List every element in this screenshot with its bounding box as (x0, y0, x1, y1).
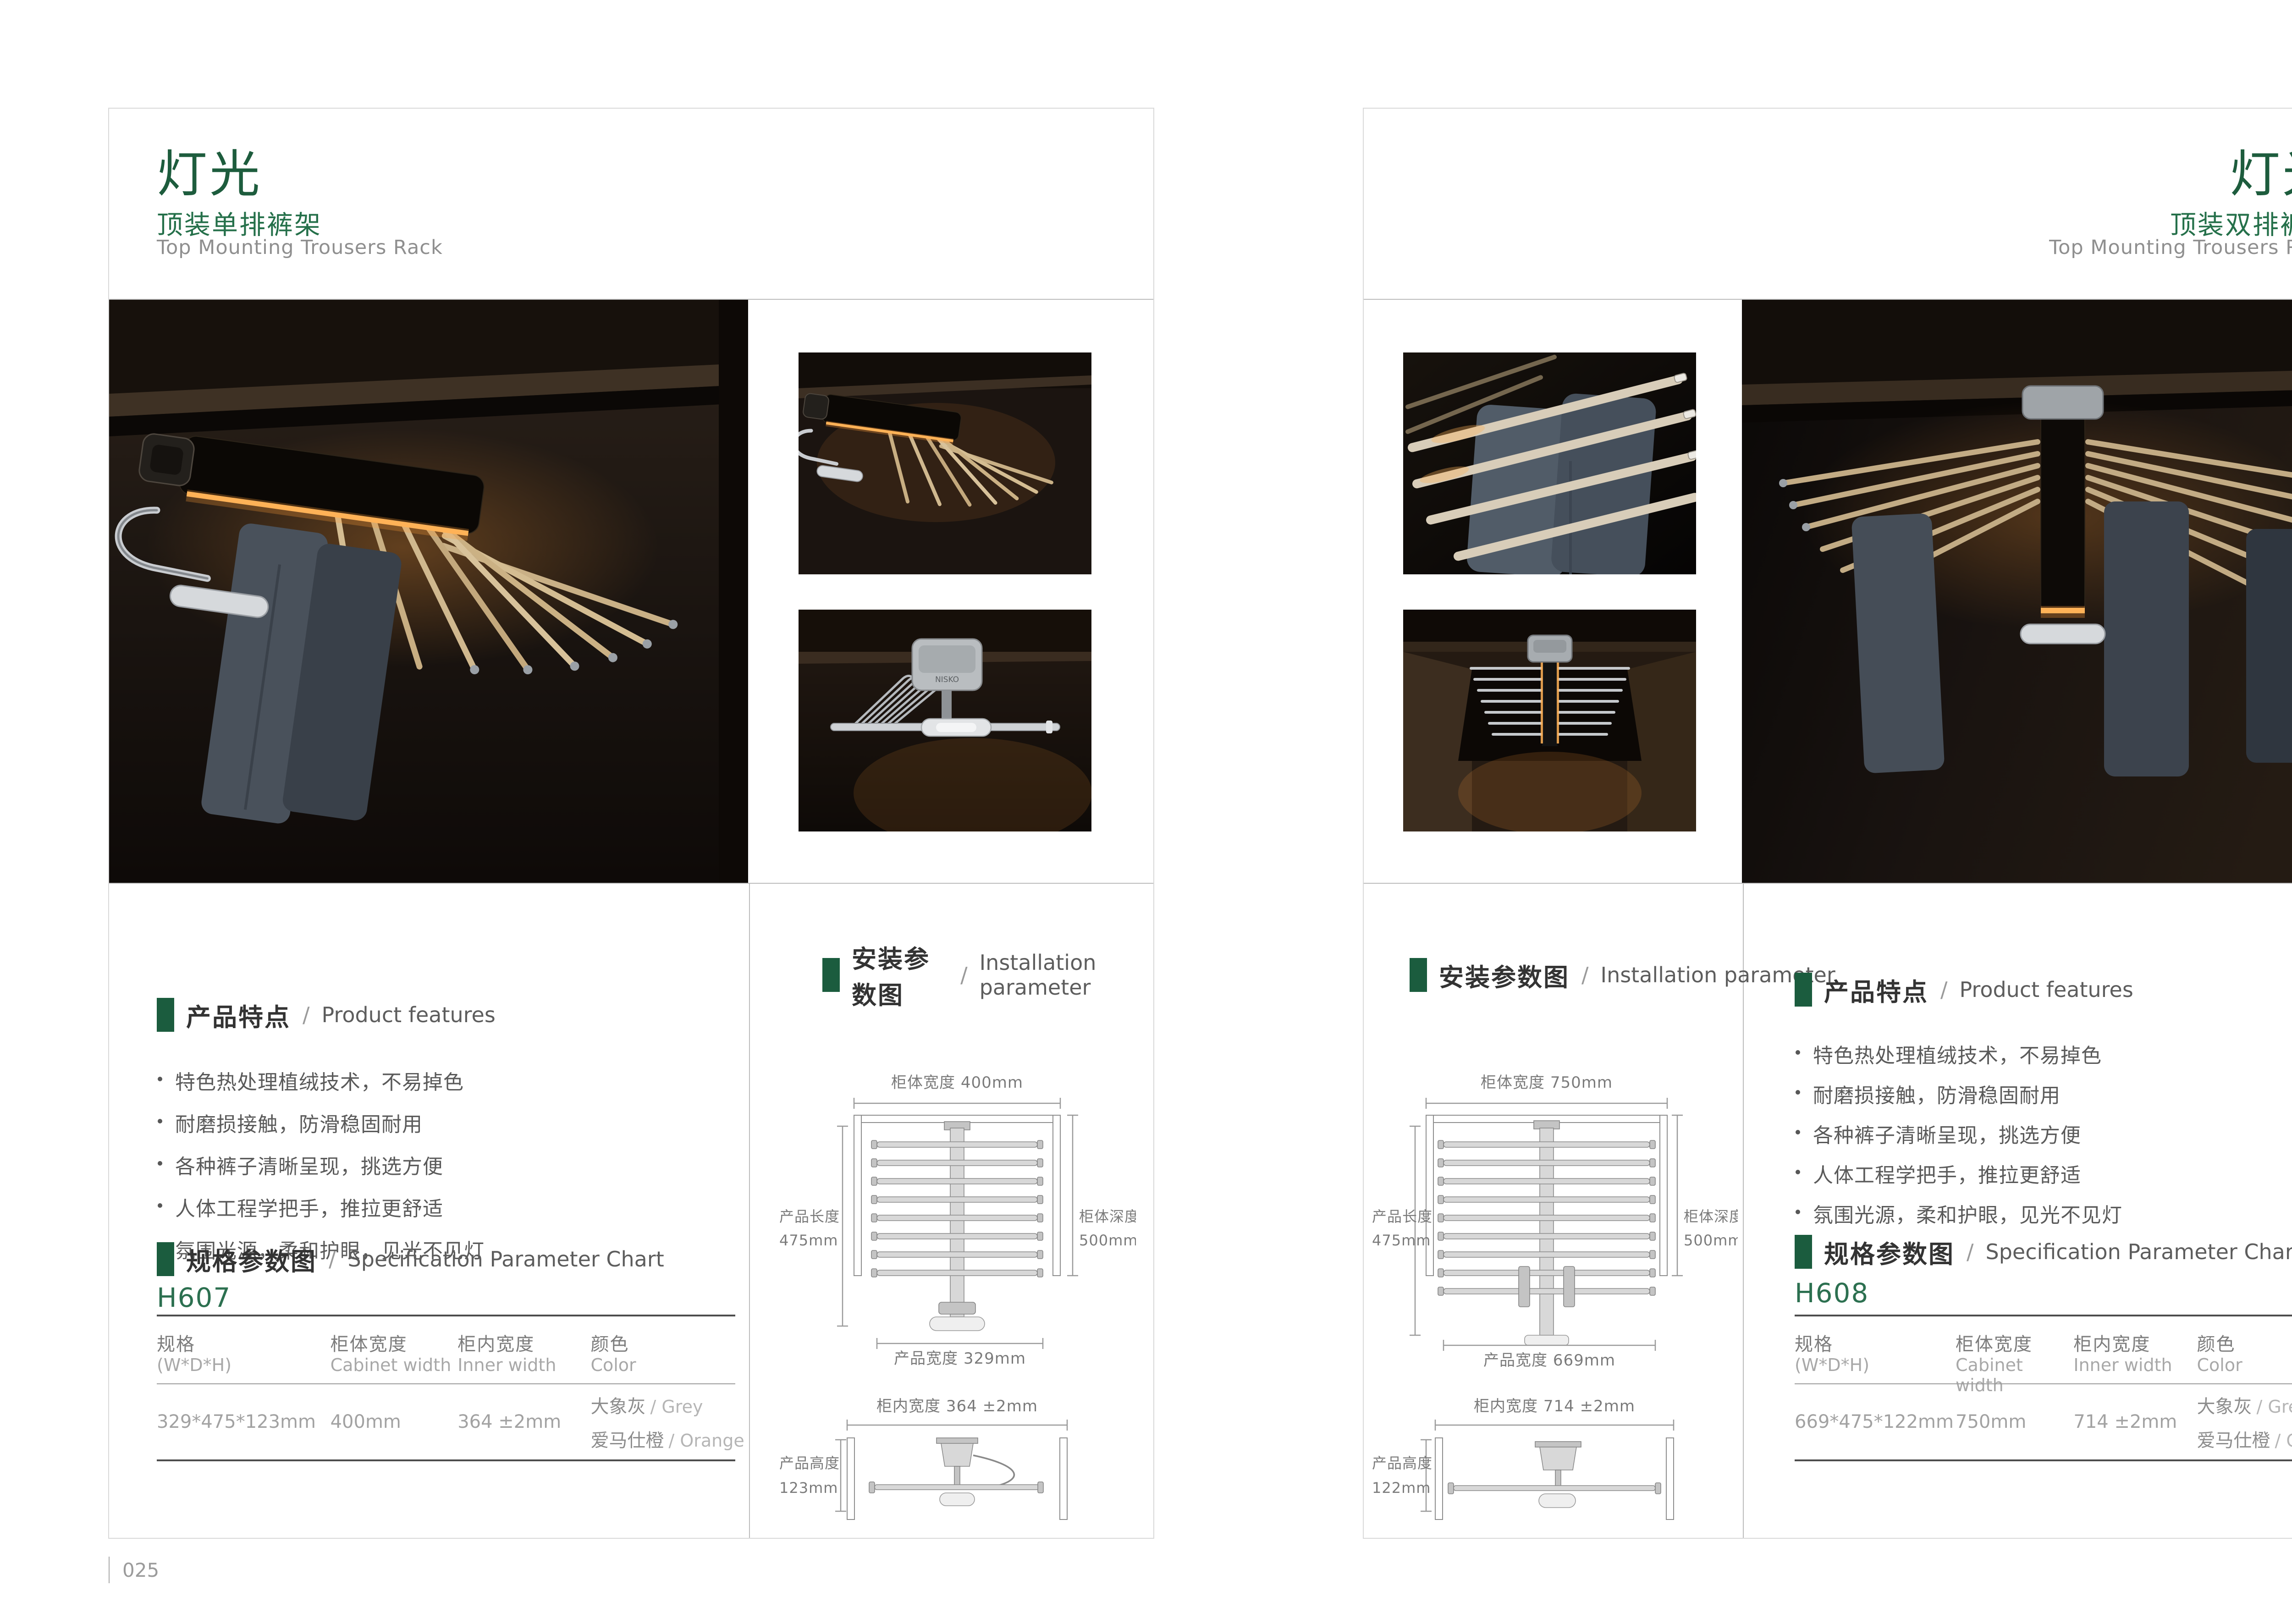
feature-text: 耐磨损接触，防滑稳固耐用 (175, 1108, 423, 1137)
installation-diagram-top-view: 柜体宽度 750mm (1371, 1069, 1738, 1367)
spec-heading-cn: 规格参数图 (186, 1241, 317, 1277)
feature-item: 人体工程学把手，推拉更舒适 (158, 1192, 443, 1222)
dim-product-width: 产品宽度 669mm (1483, 1351, 1615, 1367)
feature-text: 人体工程学把手，推拉更舒适 (1813, 1159, 2081, 1188)
col-header: 柜内宽度 (2073, 1329, 2197, 1356)
spec-table-row: 329*475*123mm 400mm 364 ±2mm 大象灰/ Grey 爱… (157, 1384, 735, 1459)
catalog-spread: 灯光 顶装单排裤架 Top Mounting Trousers Rack (0, 0, 2292, 1624)
green-marker-icon (1795, 973, 1812, 1007)
heading-separator: / (1940, 977, 1948, 1002)
feature-text: 耐磨损接触，防滑稳固耐用 (1813, 1079, 2061, 1108)
features-heading-en: Product features (1960, 977, 2133, 1002)
product-photo-detail-2: NISKO (799, 610, 1091, 831)
page-right: 灯光 顶装双排裤架 Top Mounting Trousers Rack (1363, 108, 2292, 1539)
col-header-en: Color (590, 1355, 735, 1375)
heading-separator: / (960, 963, 968, 987)
cell-colors: 大象灰/ Grey 爱马仕橙/ Orange (590, 1392, 735, 1452)
green-marker-icon (822, 958, 840, 992)
dim-product-length-cn: 产品长度 (779, 1208, 840, 1225)
installation-heading-cn: 安装参数图 (852, 939, 948, 1011)
col-header: 颜色 (590, 1329, 735, 1356)
spec-table-header-cn: 规格 柜体宽度 柜内宽度 颜色 (157, 1329, 735, 1356)
dim-cabinet-width: 柜体宽度 400mm (891, 1073, 1023, 1092)
dim-product-height-cn: 产品高度 (1372, 1454, 1432, 1472)
feature-text: 各种裤子清晰呈现，挑选方便 (175, 1150, 443, 1179)
dim-cabinet-depth-val: 500mm (1079, 1232, 1136, 1249)
page-subtitle-en: Top Mounting Trousers Rack (2049, 236, 2292, 259)
dim-cabinet-width: 柜体宽度 750mm (1481, 1073, 1613, 1092)
dim-cabinet-depth-cn: 柜体深度 (1079, 1208, 1136, 1225)
page-number-tick (109, 1557, 110, 1583)
side-view-drawing: 柜内宽度 364 ±2mm 产品高度 123mm (778, 1396, 1136, 1533)
dim-product-length-val: 475mm (1372, 1232, 1431, 1249)
cell-dimensions: 669*475*122mm (1795, 1411, 1956, 1432)
product-photo-main (109, 300, 748, 883)
color-option: 爱马仕橙/ Orange (590, 1426, 735, 1452)
bullet-dot-icon (1796, 1170, 1800, 1174)
bullet-dot-icon (1796, 1050, 1800, 1055)
rails-closeup-scene (1403, 352, 1696, 574)
product-photo-detail-1 (799, 352, 1091, 574)
features-heading-cn: 产品特点 (186, 997, 291, 1033)
dim-product-width: 产品宽度 329mm (894, 1349, 1026, 1367)
top-view-drawing: 柜体宽度 750mm (1371, 1069, 1738, 1367)
features-heading-cn: 产品特点 (1824, 972, 1928, 1008)
heading-separator: / (329, 1247, 336, 1272)
green-marker-icon (1795, 1235, 1812, 1269)
brand-mark: NISKO (935, 675, 959, 684)
green-marker-icon (157, 1242, 174, 1276)
spec-heading-cn: 规格参数图 (1824, 1234, 1955, 1270)
page-left: 灯光 顶装单排裤架 Top Mounting Trousers Rack (108, 108, 1154, 1539)
col-header: 规格 (1795, 1329, 1956, 1356)
spec-table-header-cn: 规格 柜体宽度 柜内宽度 颜色 (1795, 1329, 2292, 1356)
bullet-dot-icon (158, 1203, 162, 1208)
rack-detail-scene (799, 352, 1091, 574)
bullet-dot-icon (1796, 1090, 1800, 1095)
photo-band: NISKO (109, 299, 1153, 884)
dim-product-height-cn: 产品高度 (779, 1454, 840, 1472)
feature-text: 氛围光源，柔和护眼，见光不见灯 (1813, 1199, 2122, 1228)
heading-separator: / (1581, 963, 1589, 987)
product-photo-detail-1 (1403, 352, 1696, 574)
feature-item: 氛围光源，柔和护眼，见光不见灯 (1796, 1199, 2122, 1228)
bullet-dot-icon (158, 1077, 162, 1081)
installation-heading: 安装参数图 / Installation parameter (1410, 956, 1835, 994)
feature-item: 各种裤子清晰呈现，挑选方便 (158, 1150, 443, 1179)
col-header: 柜体宽度 (1956, 1329, 2073, 1356)
cell-inner-width: 714 ±2mm (2073, 1411, 2197, 1432)
side-view-drawing: 柜内宽度 714 ±2mm 产品高度 122mm (1371, 1396, 1738, 1533)
feature-text: 特色热处理植绒技术，不易掉色 (175, 1066, 464, 1095)
dim-cabinet-depth-cn: 柜体深度 (1684, 1208, 1738, 1225)
dim-product-length-cn: 产品长度 (1372, 1208, 1432, 1225)
product-photo-detail-2 (1403, 610, 1696, 831)
top-down-scene (1403, 610, 1696, 831)
dim-product-height-val: 123mm (779, 1479, 838, 1497)
bullet-dot-icon (1796, 1130, 1800, 1134)
features-heading: 产品特点 / Product features (157, 996, 496, 1034)
feature-text: 人体工程学把手，推拉更舒适 (175, 1192, 443, 1222)
green-marker-icon (1410, 958, 1427, 992)
color-option: 爱马仕橙/ Orange (2197, 1426, 2292, 1452)
dim-inner-width: 柜内宽度 714 ±2mm (1474, 1397, 1635, 1415)
installation-heading-cn: 安装参数图 (1439, 957, 1570, 993)
dim-cabinet-depth-val: 500mm (1684, 1232, 1738, 1249)
feature-item: 特色热处理植绒技术，不易掉色 (1796, 1039, 2102, 1068)
col-header-en: Cabinet width (331, 1355, 458, 1375)
feature-item: 特色热处理植绒技术，不易掉色 (158, 1066, 464, 1095)
cell-colors: 大象灰/ Grey 爱马仕橙/ Orange (2197, 1392, 2292, 1452)
photo-band (1364, 299, 2292, 884)
page-title: 灯光 (2230, 148, 2292, 201)
dim-inner-width: 柜内宽度 364 ±2mm (876, 1397, 1038, 1415)
color-option: 大象灰/ Grey (2197, 1392, 2292, 1418)
cell-inner-width: 364 ±2mm (457, 1411, 590, 1432)
rack-underside-scene: NISKO (799, 610, 1091, 831)
installation-heading: 安装参数图 / Installation parameter (822, 956, 1153, 994)
dim-product-length-val: 475mm (779, 1232, 838, 1249)
color-option: 大象灰/ Grey (590, 1392, 735, 1418)
spec-heading-en: Specification Parameter Chart (348, 1247, 664, 1272)
model-number: H607 (157, 1282, 231, 1313)
feature-item: 人体工程学把手，推拉更舒适 (1796, 1159, 2081, 1188)
features-heading-en: Product features (322, 1002, 496, 1027)
feature-item: 耐磨损接触，防滑稳固耐用 (158, 1108, 423, 1137)
col-header-en: (W*D*H) (157, 1355, 331, 1375)
product-photo-main (1742, 300, 2292, 883)
cell-cabinet-width: 400mm (331, 1411, 458, 1432)
cell-cabinet-width: 750mm (1956, 1411, 2073, 1432)
spec-table-header-en: (W*D*H) Cabinet width Inner width Color (157, 1355, 735, 1375)
spec-table-row: 669*475*122mm 750mm 714 ±2mm 大象灰/ Grey 爱… (1795, 1384, 2292, 1459)
spec-heading: 规格参数图 / Specification Parameter Chart (157, 1240, 664, 1278)
content-divider (749, 884, 750, 1538)
feature-text: 各种裤子清晰呈现，挑选方便 (1813, 1119, 2081, 1148)
col-header: 柜内宽度 (457, 1329, 590, 1356)
feature-text: 特色热处理植绒技术，不易掉色 (1813, 1039, 2102, 1068)
feature-item: 各种裤子清晰呈现，挑选方便 (1796, 1119, 2081, 1148)
page-number-left: 025 (109, 1557, 159, 1583)
spec-heading: 规格参数图 / Specification Parameter Chart (1795, 1233, 2292, 1271)
feature-item: 耐磨损接触，防滑稳固耐用 (1796, 1079, 2061, 1108)
wardrobe-scene (109, 300, 748, 883)
installation-diagram-top-view: 柜体宽度 400mm (778, 1069, 1136, 1367)
heading-separator: / (1967, 1239, 1974, 1264)
spec-table: 规格 柜体宽度 柜内宽度 颜色 (W*D*H) Cabinet width In… (1795, 1315, 2292, 1461)
dim-product-height-val: 122mm (1372, 1479, 1431, 1497)
model-number: H608 (1795, 1277, 1869, 1309)
green-marker-icon (157, 998, 174, 1032)
heading-separator: / (303, 1002, 310, 1027)
installation-diagram-side-view: 柜内宽度 364 ±2mm 产品高度 123mm (778, 1396, 1136, 1533)
bullet-dot-icon (158, 1119, 162, 1123)
installation-heading-en: Installation parameter (980, 950, 1153, 1000)
col-header: 柜体宽度 (331, 1329, 458, 1356)
col-header: 颜色 (2197, 1329, 2292, 1356)
bullet-dot-icon (1796, 1210, 1800, 1214)
spec-table: 规格 柜体宽度 柜内宽度 颜色 (W*D*H) Cabinet width In… (157, 1315, 735, 1461)
bullet-dot-icon (158, 1161, 162, 1166)
col-header-en: Inner width (457, 1355, 590, 1375)
page-subtitle-en: Top Mounting Trousers Rack (157, 236, 443, 259)
installation-diagram-side-view: 柜内宽度 714 ±2mm 产品高度 122mm (1371, 1396, 1738, 1533)
cell-dimensions: 329*475*123mm (157, 1411, 331, 1432)
wardrobe-scene (1742, 300, 2292, 883)
col-header: 规格 (157, 1329, 331, 1356)
page-number-text: 025 (122, 1559, 159, 1581)
top-view-drawing: 柜体宽度 400mm (778, 1069, 1136, 1367)
spec-heading-en: Specification Parameter Chart (1986, 1239, 2292, 1264)
features-heading: 产品特点 / Product features (1795, 970, 2133, 1009)
page-title: 灯光 (157, 148, 262, 201)
